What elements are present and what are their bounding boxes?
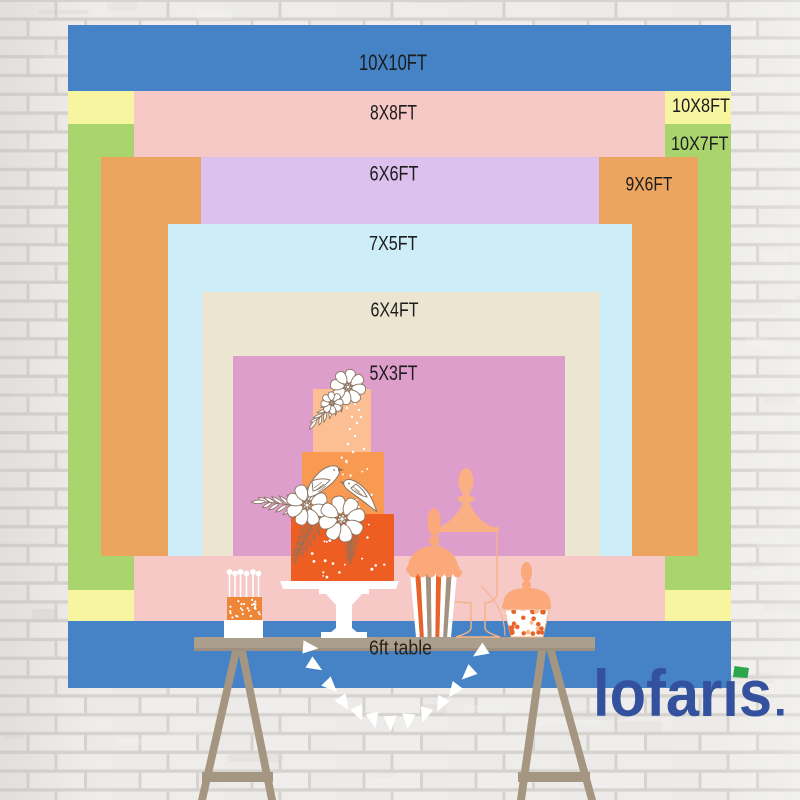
- svg-text:7X5FT: 7X5FT: [369, 233, 418, 255]
- svg-text:10X7FT: 10X7FT: [671, 133, 729, 155]
- svg-text:6X6FT: 6X6FT: [370, 162, 419, 186]
- svg-text:10X8FT: 10X8FT: [672, 95, 730, 117]
- svg-text:9X6FT: 9X6FT: [626, 174, 673, 196]
- svg-text:lofarıs: lofarıs: [593, 656, 772, 730]
- svg-text:8X8FT: 8X8FT: [370, 102, 417, 125]
- svg-text:6X4FT: 6X4FT: [371, 299, 419, 322]
- svg-text:5X3FT: 5X3FT: [370, 362, 418, 385]
- svg-text:10X10FT: 10X10FT: [359, 50, 427, 75]
- svg-text:6ft table: 6ft table: [369, 638, 432, 660]
